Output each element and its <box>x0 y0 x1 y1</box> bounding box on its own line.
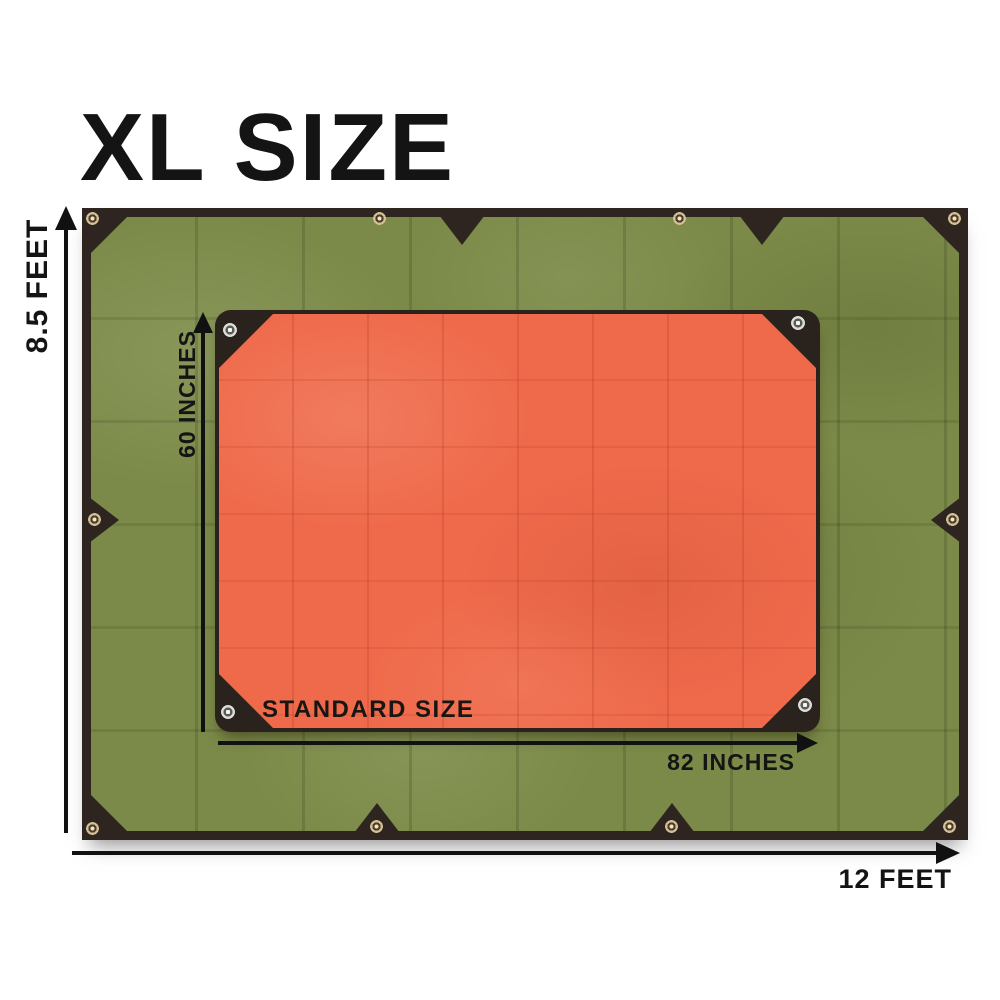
grommet-icon <box>221 705 235 719</box>
arrow-right-icon <box>936 842 960 864</box>
grommet-icon <box>673 212 686 225</box>
standard-height-label: 60 INCHES <box>170 304 204 484</box>
xl-width-label: 12 FEET <box>760 864 952 895</box>
xl-height-arrow-line <box>64 218 68 833</box>
grommet-icon <box>943 820 956 833</box>
standard-tarp-surface <box>219 314 816 728</box>
arrow-right-icon <box>797 733 818 753</box>
grommet-icon <box>946 513 959 526</box>
standard-width-label: 82 INCHES <box>595 749 795 776</box>
standard-size-label: STANDARD SIZE <box>262 696 474 724</box>
grommet-icon <box>948 212 961 225</box>
grommet-icon <box>665 820 678 833</box>
product-size-diagram: STANDARD SIZE 8.5 FEET 12 FEET 60 INCHES… <box>0 0 1000 1000</box>
grommet-icon <box>791 316 805 330</box>
grommet-icon <box>373 212 386 225</box>
standard-width-arrow-line <box>218 741 800 745</box>
xl-width-arrow-line <box>72 851 940 855</box>
grommet-icon <box>88 513 101 526</box>
grommet-icon <box>223 323 237 337</box>
grommet-icon <box>86 822 99 835</box>
arrow-up-icon <box>55 206 77 230</box>
grommet-icon <box>798 698 812 712</box>
grommet-icon <box>86 212 99 225</box>
xl-height-label: 8.5 FEET <box>18 201 58 371</box>
grommet-icon <box>370 820 383 833</box>
standard-tarp: STANDARD SIZE <box>215 310 820 732</box>
page-title: XL SIZE <box>80 100 455 196</box>
